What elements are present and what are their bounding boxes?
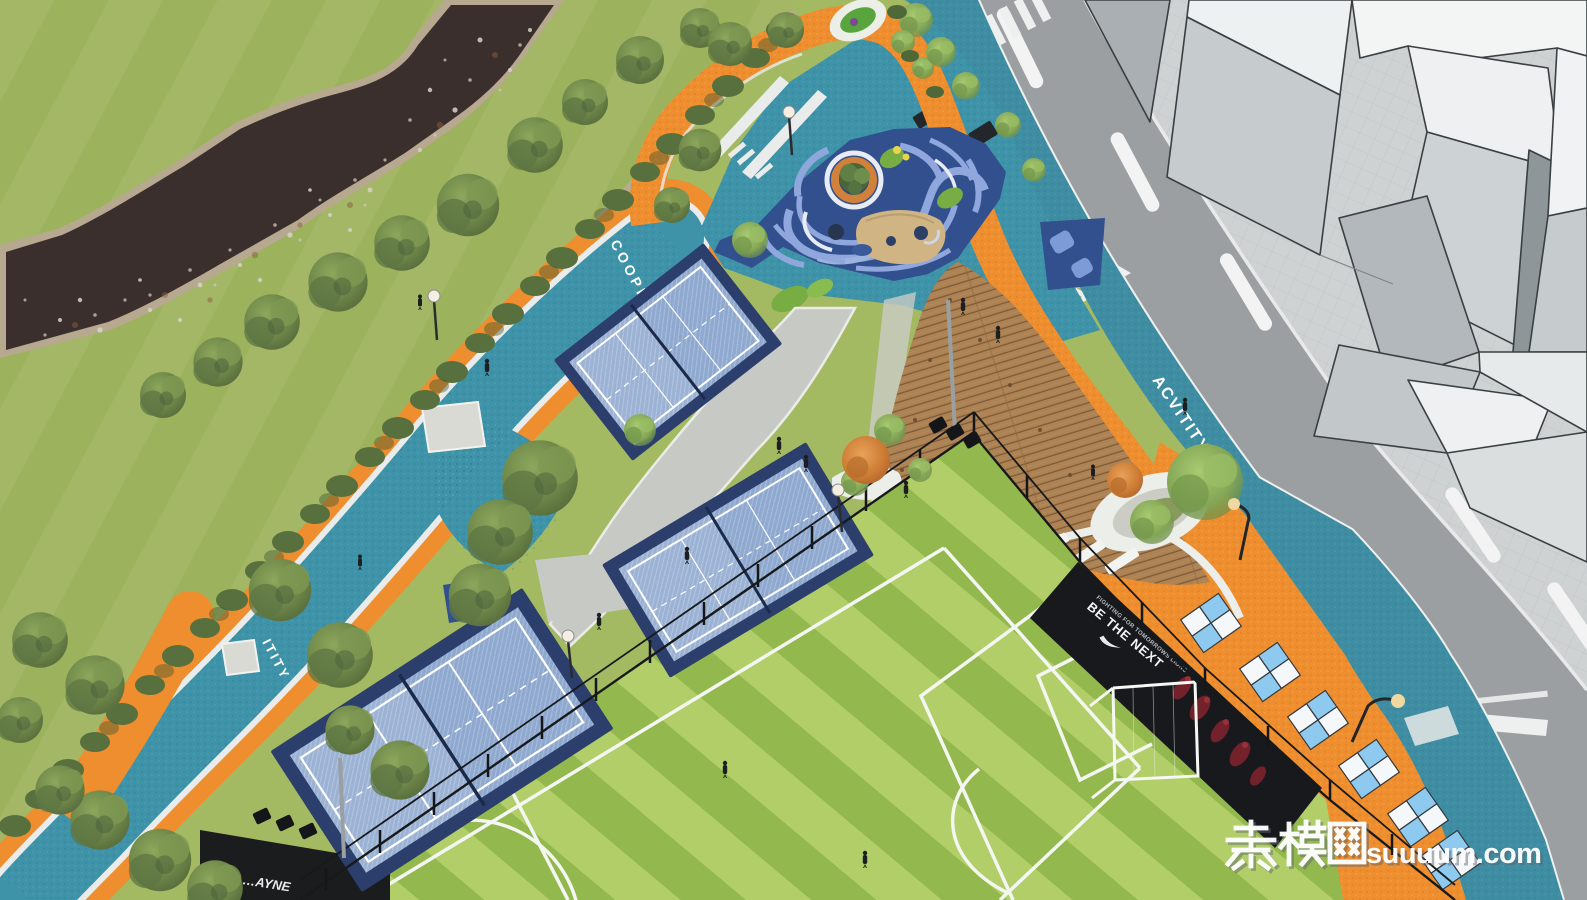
svg-text:suuuum.com: suuuum.com	[1366, 838, 1541, 870]
